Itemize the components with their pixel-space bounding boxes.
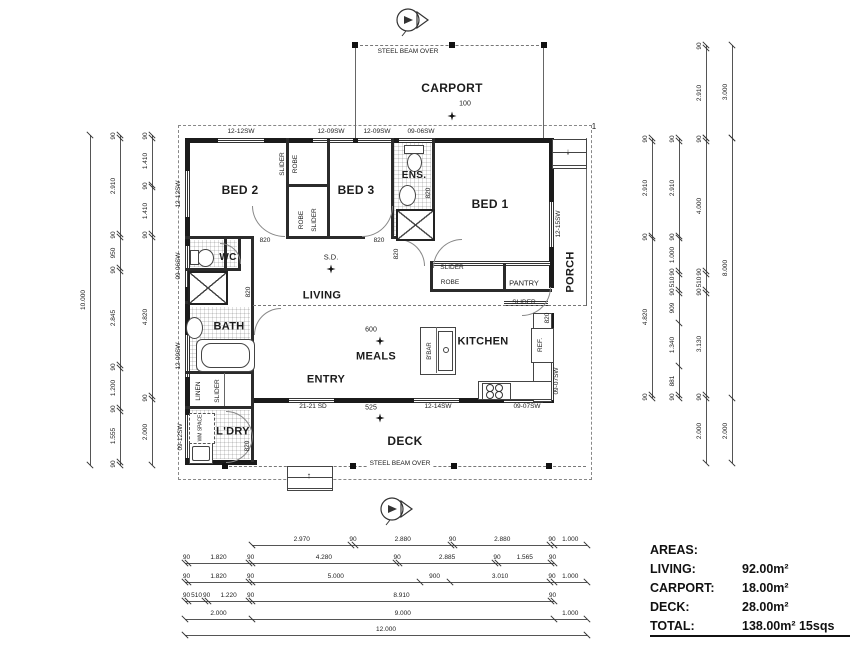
window-glyph: [399, 138, 432, 143]
dim-bottom-4: [185, 601, 554, 602]
wall-linen-south: [185, 406, 253, 409]
areas-row-deck: DECK: 28.00m²: [650, 597, 850, 616]
wm-space: WM SPACE: [199, 415, 204, 442]
dim-bottom-overall: [185, 635, 587, 636]
dim-bottom-3-value-7: 1.000: [562, 574, 578, 581]
wall-bed3-south: [327, 236, 365, 239]
window-glyph: [549, 202, 554, 247]
room-porch: PORCH: [566, 251, 577, 292]
dim-right-1-value-1: 2.910: [643, 180, 650, 196]
deck-post: [222, 463, 228, 469]
door-820-bath: 820: [246, 287, 253, 298]
carport-post: [352, 42, 358, 48]
window-glyph: [313, 138, 353, 143]
pantry-slider: SLIDER: [512, 300, 535, 307]
section-marker-bottom: [378, 494, 416, 528]
dim-right-1-value-3: 4.820: [643, 309, 650, 325]
ens-shower: [396, 209, 435, 241]
dim-bottom-1-value-6: 1.000: [562, 537, 578, 544]
dim-right-2: [679, 138, 680, 398]
dim-right-2-value-7: 909: [670, 303, 677, 314]
room-bed2: BED 2: [222, 184, 259, 196]
dim-bottom-1-value-4: 2.880: [494, 537, 510, 544]
dim-left-overall: [90, 135, 91, 465]
wall-robe-west: [286, 138, 289, 239]
areas-table: AREAS: LIVING: 92.00m² CARPORT: 18.00m² …: [650, 540, 850, 637]
dim-bottom-2-value-3: 4.280: [316, 555, 332, 562]
dim-bottom-5-value-0: 2.000: [210, 611, 226, 618]
dim-left-mid-value-1: 2.910: [111, 178, 118, 194]
wall-robe-south: [286, 236, 331, 239]
window-top-3: 12-09SW: [363, 129, 390, 136]
robe-slider-bed2: SLIDER: [280, 152, 287, 175]
door-820-laundry: 820: [245, 441, 252, 452]
deck-steps-arrow: ↑: [307, 472, 312, 481]
cooktop-burner: [495, 391, 503, 399]
room-laundry: L'DRY: [216, 427, 250, 438]
window-glyph: [185, 171, 190, 217]
carport-post: [541, 42, 547, 48]
dim-bottom-2-value-7: 1.565: [517, 555, 533, 562]
dim-left-inner-value-3: 1.410: [143, 203, 150, 219]
dim-left-mid: [120, 135, 121, 465]
dim-bottom-5-value-1: 9.000: [395, 611, 411, 618]
dim-bottom-overall-value-0: 12.000: [376, 627, 396, 634]
dim-bottom-4-value-1: 510: [191, 593, 202, 600]
dim-right-3-value-7: 2.000: [697, 422, 704, 438]
robe-bed3: ROBE: [299, 211, 306, 229]
dim-bottom-4-value-5: 8.910: [393, 593, 409, 600]
room-bed1: BED 1: [472, 198, 509, 210]
window-top-4: 09-06SW: [407, 129, 434, 136]
room-bath: BATH: [214, 322, 245, 333]
dim-left-mid-value-3: 950: [111, 247, 118, 258]
dim-right-carport-outer-value-0: 3.000: [723, 83, 730, 99]
robe-slider-bed3: SLIDER: [312, 208, 319, 231]
floor-plan-sheet: AREAS: LIVING: 92.00m² CARPORT: 18.00m² …: [0, 0, 858, 661]
door-820-bed3: 820: [374, 238, 385, 245]
bathtub-inner: [201, 343, 250, 368]
bath-basin: [186, 317, 203, 339]
areas-title: AREAS:: [650, 543, 698, 557]
dim-bottom-1-value-2: 2.880: [395, 537, 411, 544]
door-820-bed2: 820: [260, 238, 271, 245]
window-right-2: 09-07SW: [554, 367, 561, 394]
wall-bed2-south: [185, 236, 252, 239]
dim-right-1: [652, 138, 653, 398]
window-left-1: 12-12SW: [176, 180, 183, 207]
door-820-porch: 820: [545, 313, 552, 324]
post-size-525: 525: [365, 405, 377, 412]
dim-bottom-3-value-4: 900: [429, 574, 440, 581]
post-size-600: 600: [365, 327, 377, 334]
dim-right-3-value-5: 3.130: [697, 336, 704, 352]
post-size-100: 100: [459, 101, 471, 108]
breakfast-bar: B'BAR: [427, 342, 433, 359]
section-marker-top: [394, 5, 432, 39]
deck-post: [350, 463, 356, 469]
dim-right-carport-inner: [706, 45, 707, 138]
areas-row-carport: CARPORT: 18.00m²: [650, 578, 850, 597]
window-right-1: 12-15SW: [556, 210, 563, 237]
dim-bottom-2-value-1: 1.820: [210, 555, 226, 562]
dim-right-3-value-1: 4.000: [697, 198, 704, 214]
dim-right-carport-inner-value-1: 2.910: [697, 85, 704, 101]
wall-pantry-divider: [503, 263, 506, 292]
dim-bottom-5-value-2: 1.000: [562, 611, 578, 618]
dim-right-2-value-9: 881: [670, 375, 677, 386]
dim-right-2-value-1: 2.910: [670, 180, 677, 196]
smoke-detector: S.D.: [324, 253, 339, 261]
dim-bottom-3: [185, 582, 587, 583]
dim-left-inner-value-7: 2.000: [143, 424, 150, 440]
dim-right-overall: [732, 138, 733, 463]
ens-basin: [399, 185, 416, 206]
island-divider: [436, 327, 437, 373]
dim-left-mid-value-7: 1.200: [111, 380, 118, 396]
door-820-ens: 820: [426, 188, 433, 199]
window-glyph: [358, 138, 394, 143]
room-living: LIVING: [303, 291, 341, 302]
window-left-2: 09-06SW: [176, 252, 183, 279]
window-left-3: 12-09SW: [176, 342, 183, 369]
wc-toilet: [197, 249, 214, 267]
carport-side-right: [543, 45, 544, 139]
robe-bed1: ROBE: [441, 280, 459, 287]
room-entry: ENTRY: [307, 375, 345, 386]
linen: LINEN: [196, 381, 203, 400]
porch-steps-arrow: ↓: [566, 148, 571, 157]
pantry: PANTRY: [509, 279, 539, 287]
carport-post-marker: [448, 112, 457, 121]
room-bed3: BED 3: [338, 184, 375, 196]
dim-right-overall-value-0: 8.000: [723, 260, 730, 276]
dim-right-2-value-8: 1.340: [670, 337, 677, 353]
linen-front: [224, 373, 225, 406]
carport-post: [449, 42, 455, 48]
areas-row-total: TOTAL: 138.00m² 15sqs: [650, 616, 850, 637]
dim-left-inner-value-1: 1.410: [143, 153, 150, 169]
window-top-2: 12-09SW: [317, 129, 344, 136]
wall-bed3-ens: [391, 138, 394, 239]
window-glyph: [218, 138, 264, 143]
linen-slider: SLIDER: [215, 379, 222, 402]
laundry-trough-inner: [192, 446, 210, 461]
room-deck: DECK: [387, 435, 422, 447]
wc-cistern: [190, 250, 199, 265]
fridge: REF.: [538, 338, 545, 352]
grid-marker-1: 1: [592, 123, 596, 131]
dim-right-3: [706, 138, 707, 463]
dim-bottom-1: [252, 545, 587, 546]
robe-bed2: ROBE: [293, 155, 300, 173]
sliding-door-entry: 21-21 SD: [299, 404, 326, 411]
dim-bottom-3-value-5: 3.010: [492, 574, 508, 581]
dim-right-carport-outer: [732, 45, 733, 138]
window-top-1: 12-12SW: [227, 129, 254, 136]
sink-tap: [443, 347, 449, 353]
window-bottom-1: 12-14SW: [424, 404, 451, 411]
room-meals: MEALS: [356, 352, 396, 363]
window-left-4: 09-12SW: [178, 423, 185, 450]
steel-beam-over-top: STEEL BEAM OVER: [376, 49, 441, 56]
dim-bottom-2-value-5: 2.885: [439, 555, 455, 562]
deck-post: [451, 463, 457, 469]
robe-slider-bed1: SLIDER: [440, 265, 463, 272]
wall-robe-east: [327, 138, 330, 239]
dim-right-overall-value-1: 2.000: [723, 422, 730, 438]
wall-robe-mid: [286, 184, 330, 187]
dim-bottom-3-value-3: 5.000: [328, 574, 344, 581]
dim-left-mid-value-9: 1.555: [111, 428, 118, 444]
cooktop-burner: [486, 391, 494, 399]
areas-row-living: LIVING: 92.00m²: [650, 559, 850, 578]
room-wc: WC: [219, 253, 236, 263]
dim-bottom-3-value-1: 1.820: [210, 574, 226, 581]
dim-left-inner-value-5: 4.820: [143, 308, 150, 324]
window-bottom-2: 09-07SW: [513, 404, 540, 411]
dim-bottom-5: [185, 619, 587, 620]
shower: [188, 271, 228, 305]
room-kitchen: KITCHEN: [458, 337, 509, 348]
dim-bottom-4-value-3: 1.220: [220, 593, 236, 600]
room-carport: CARPORT: [421, 82, 482, 94]
steel-beam-over-bottom: STEEL BEAM OVER: [368, 461, 433, 468]
door-820-hall: 820: [394, 249, 401, 260]
deck-post: [546, 463, 552, 469]
dim-left-overall-value-0: 10.000: [81, 290, 88, 310]
dim-bottom-1-value-0: 2.970: [294, 537, 310, 544]
carport-side-left: [355, 45, 356, 139]
dim-left-mid-value-5: 2.845: [111, 310, 118, 326]
dim-right-2-value-3: 1.000: [670, 247, 677, 263]
room-ensuite: ENS.: [402, 171, 427, 181]
